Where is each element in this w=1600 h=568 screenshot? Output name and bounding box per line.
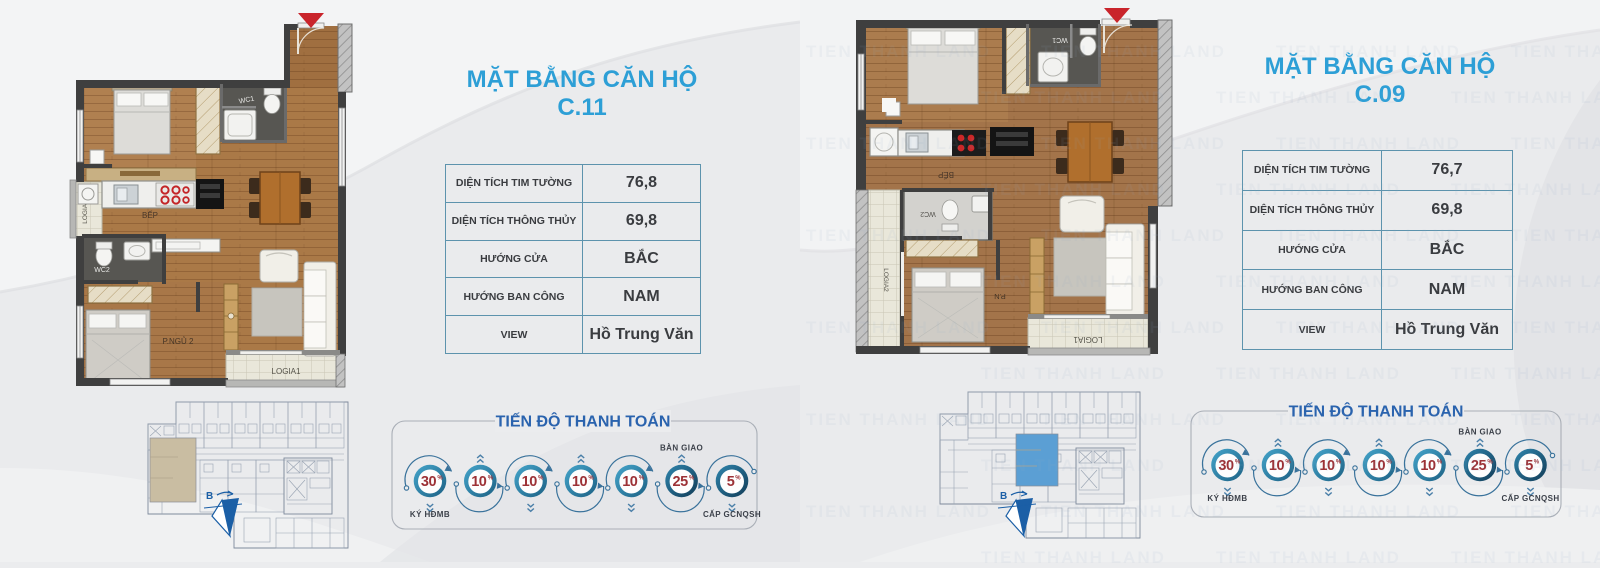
svg-text:B: B xyxy=(206,491,213,502)
svg-text:10: 10 xyxy=(1420,458,1436,474)
svg-text:30: 30 xyxy=(421,474,437,490)
svg-text:TIẾN ĐỘ THANH TOÁN: TIẾN ĐỘ THANH TOÁN xyxy=(496,412,671,431)
svg-text:10: 10 xyxy=(622,474,638,490)
svg-text:KÝ HĐMB: KÝ HĐMB xyxy=(410,510,450,519)
svg-text:BẾP: BẾP xyxy=(142,210,158,220)
svg-text:P.NGỦ 2: P.NGỦ 2 xyxy=(163,337,195,346)
svg-text:LOGIA2: LOGIA2 xyxy=(882,268,889,292)
svg-text:BÀN GIAO: BÀN GIAO xyxy=(660,444,703,453)
svg-text:10: 10 xyxy=(522,474,538,490)
svg-text:%: % xyxy=(588,476,594,482)
svg-text:%: % xyxy=(488,476,494,482)
svg-text:WC2: WC2 xyxy=(920,210,936,217)
svg-text:%: % xyxy=(689,476,695,482)
svg-text:LOGIA1: LOGIA1 xyxy=(272,367,301,376)
svg-text:%: % xyxy=(437,476,443,482)
svg-text:%: % xyxy=(639,476,645,482)
svg-text:%: % xyxy=(1437,460,1443,466)
svg-text:BÀN GIAO: BÀN GIAO xyxy=(1458,428,1501,437)
svg-text:10: 10 xyxy=(471,474,487,490)
svg-text:WC2: WC2 xyxy=(94,267,110,274)
svg-text:BẾP: BẾP xyxy=(938,170,954,180)
svg-text:CẤP GCNQSH: CẤP GCNQSH xyxy=(703,509,761,519)
svg-text:P.N: P.N xyxy=(994,292,1006,301)
svg-text:%: % xyxy=(735,476,741,482)
svg-text:5: 5 xyxy=(727,474,735,490)
svg-text:25: 25 xyxy=(673,474,689,490)
svg-text:B: B xyxy=(1000,491,1007,502)
svg-text:10: 10 xyxy=(572,474,588,490)
svg-text:%: % xyxy=(538,476,544,482)
